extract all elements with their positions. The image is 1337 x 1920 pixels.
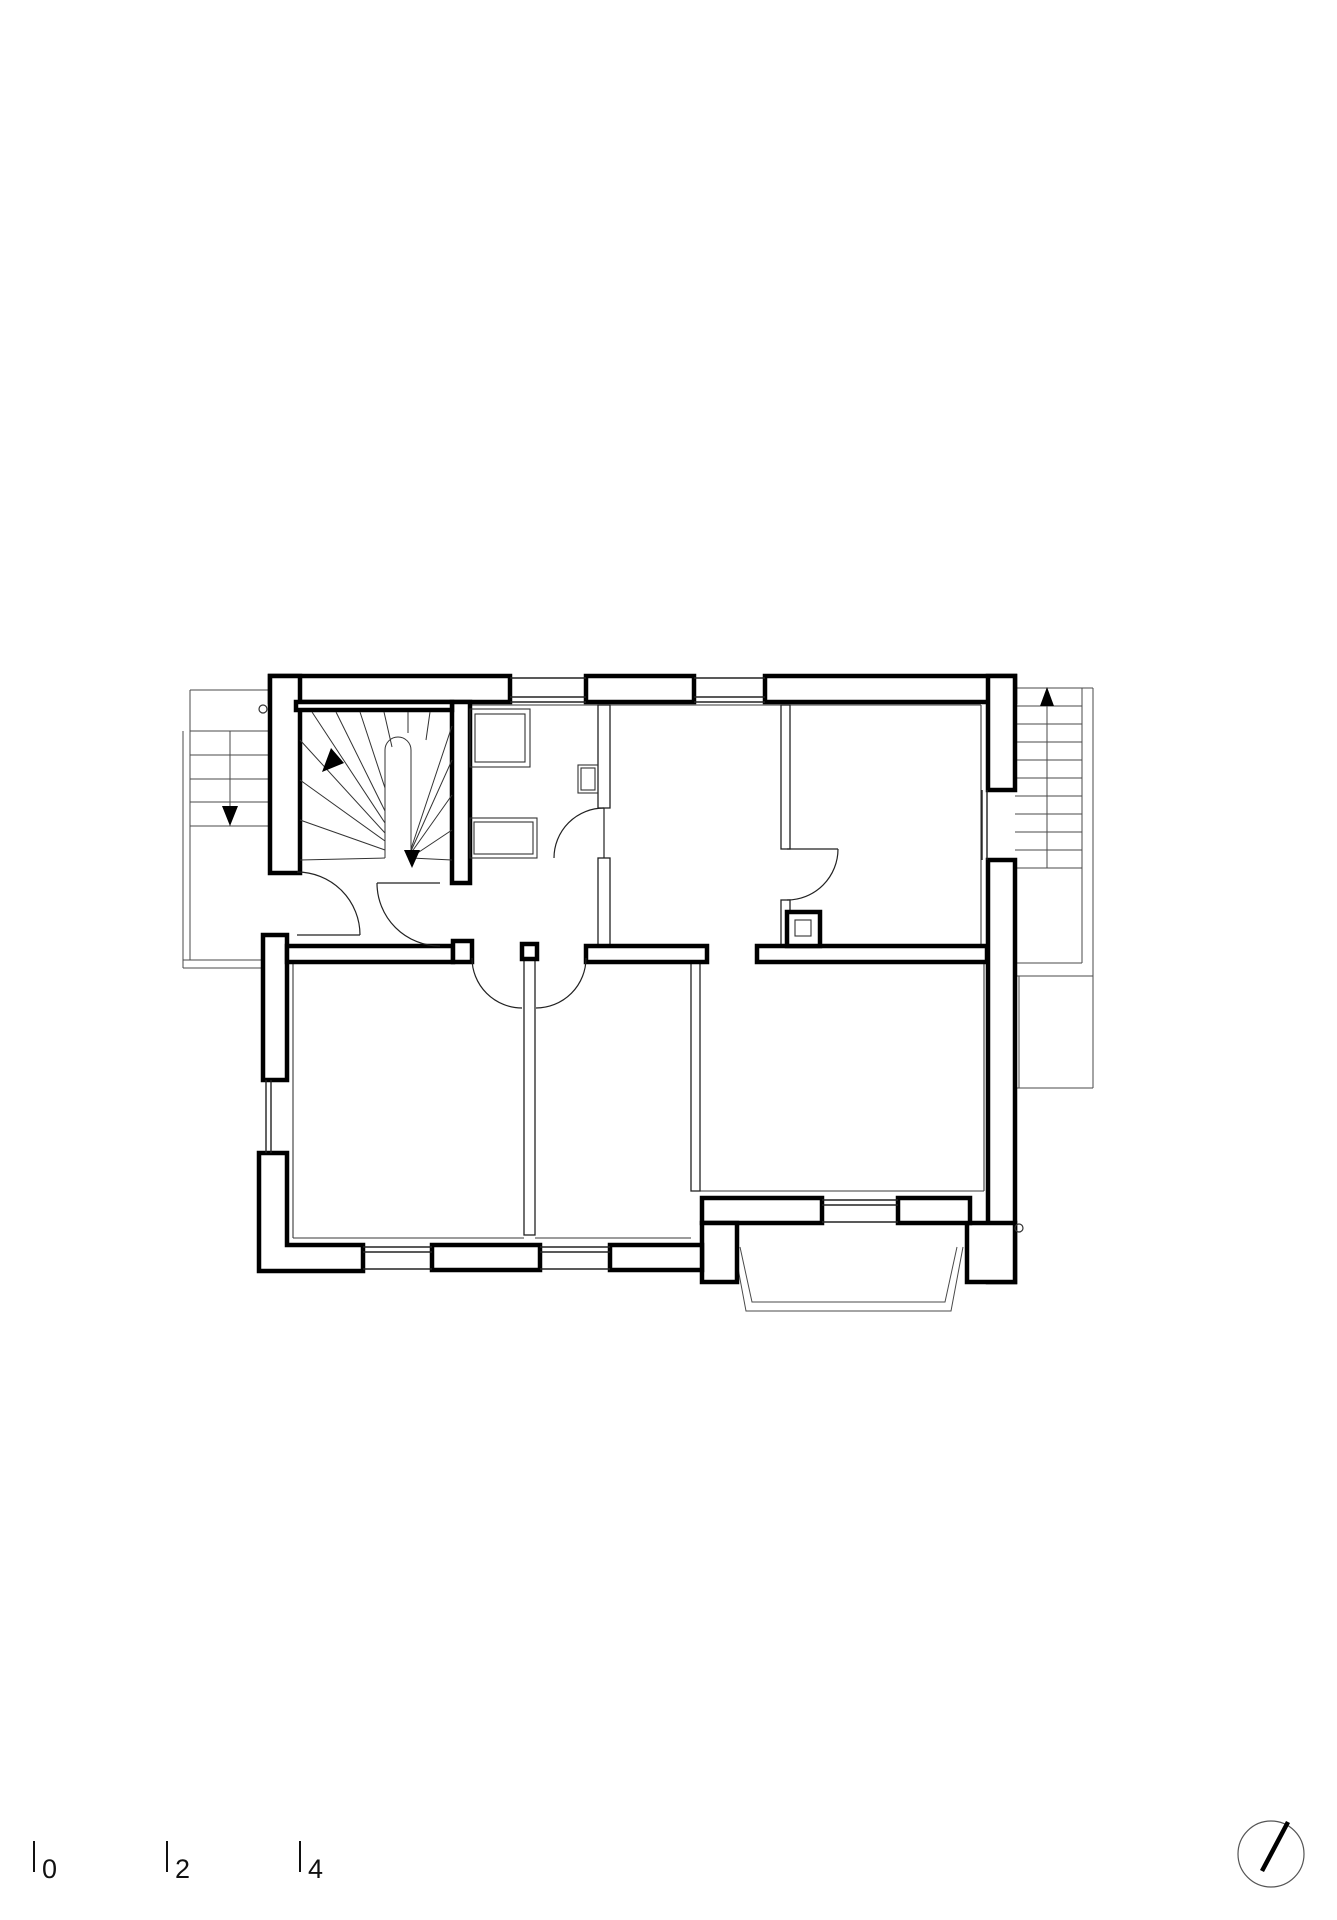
- wall-right-upper: [988, 676, 1015, 790]
- stair-up-direction-arrow-icon: [322, 748, 344, 772]
- stair-down-direction-arrow-icon: [404, 850, 420, 868]
- scale-bar-label-2: 2: [175, 1856, 190, 1883]
- partition-bottom-rooms-1: [524, 959, 535, 1235]
- partition-kitchen-lower: [598, 858, 610, 946]
- door-entry-arc: [297, 872, 360, 935]
- wall-left-pier: [263, 935, 287, 1080]
- wall-terrace-step: [702, 1223, 737, 1282]
- wall-top-1: [270, 676, 510, 702]
- wall-top-2: [586, 676, 694, 702]
- downpipe-symbol-left: [259, 705, 267, 713]
- layer-inner-faces: [293, 705, 984, 1238]
- stair-down-arrow-icon: [222, 806, 238, 826]
- interior-stair-line-1: [300, 858, 385, 860]
- wall-bottom-right-corner: [967, 1223, 1015, 1282]
- layer-interior-stair: [300, 712, 452, 868]
- wall-bottom-3: [610, 1245, 702, 1270]
- interior-stair-line-10: [426, 712, 430, 740]
- layer-furniture: [470, 709, 811, 936]
- floor-plan-drawing: [0, 0, 1337, 1920]
- interior-stair-line-7: [360, 712, 385, 788]
- interior-stair-line-13: [411, 795, 452, 853]
- stair-up-arrow-icon: [1040, 687, 1054, 706]
- scale-bar-label-0: 0: [42, 1856, 57, 1883]
- interior-stair-line-3: [300, 780, 385, 841]
- door-kitchen-arc: [554, 808, 604, 858]
- layer-partitions: [524, 705, 790, 1235]
- layer-doors: [297, 808, 838, 1008]
- interior-stair-line-15: [411, 858, 452, 860]
- terrace-steps-polyline-1: [734, 1247, 963, 1311]
- fixture-square-large: [470, 709, 530, 767]
- wall-middle-2: [586, 946, 707, 962]
- furniture-rect-5: [474, 822, 533, 854]
- north-needle-icon: [1262, 1822, 1288, 1871]
- wall-bottom-2: [432, 1245, 540, 1270]
- wall-right-lower: [988, 860, 1015, 1282]
- furniture-rect-3: [581, 768, 595, 790]
- terrace-steps-polyline-0: [740, 1247, 957, 1302]
- fixture-counter: [470, 818, 537, 858]
- interior-stair-line-12: [411, 760, 452, 851]
- wall-stair-enclosure-top: [296, 702, 452, 710]
- door-stairhall-arc: [377, 883, 440, 946]
- partition-bottom-rooms-2: [691, 962, 700, 1191]
- interior-stair-line-6: [336, 712, 385, 811]
- layer-windows: [266, 678, 987, 1269]
- partition-kitchen-upper: [598, 705, 610, 808]
- wall-top-3: [765, 676, 1015, 702]
- wall-middle-door-post: [522, 944, 537, 959]
- interior-stair-line-2: [300, 820, 385, 850]
- north-indicator: [1238, 1821, 1304, 1887]
- interior-stair-line-4: [300, 740, 385, 833]
- wall-middle-jamb: [453, 941, 472, 962]
- interior-stair-line-5: [312, 712, 385, 823]
- wall-middle-3: [757, 946, 987, 962]
- floor-plan-page: 0 2 4: [0, 0, 1337, 1920]
- furniture-rect-1: [475, 714, 525, 762]
- layer-terrace-steps: [734, 1247, 963, 1311]
- door-bottomleft-arc: [472, 958, 522, 1008]
- stair-rail-arch: [385, 737, 411, 858]
- layer-symbols: [259, 705, 1023, 1232]
- wall-stair-enclosure-right: [452, 702, 470, 883]
- scale-bar-label-4: 4: [308, 1856, 323, 1883]
- wall-south-terrace-2: [898, 1198, 970, 1223]
- layer-exterior-stair-right: [1015, 687, 1093, 1088]
- partition-topright-upper: [781, 705, 790, 849]
- layer-exterior-stair-left: [183, 690, 270, 968]
- door-topright-arc: [787, 849, 838, 900]
- wall-middle-1: [287, 946, 453, 962]
- wall-south-terrace-1: [702, 1198, 822, 1223]
- scale-bar: [34, 1841, 300, 1872]
- interior-stair-line-11: [411, 726, 452, 849]
- wall-bottom-left-corner: [259, 1153, 363, 1271]
- door-bottommid-arc: [536, 958, 586, 1008]
- chimney: [787, 912, 820, 946]
